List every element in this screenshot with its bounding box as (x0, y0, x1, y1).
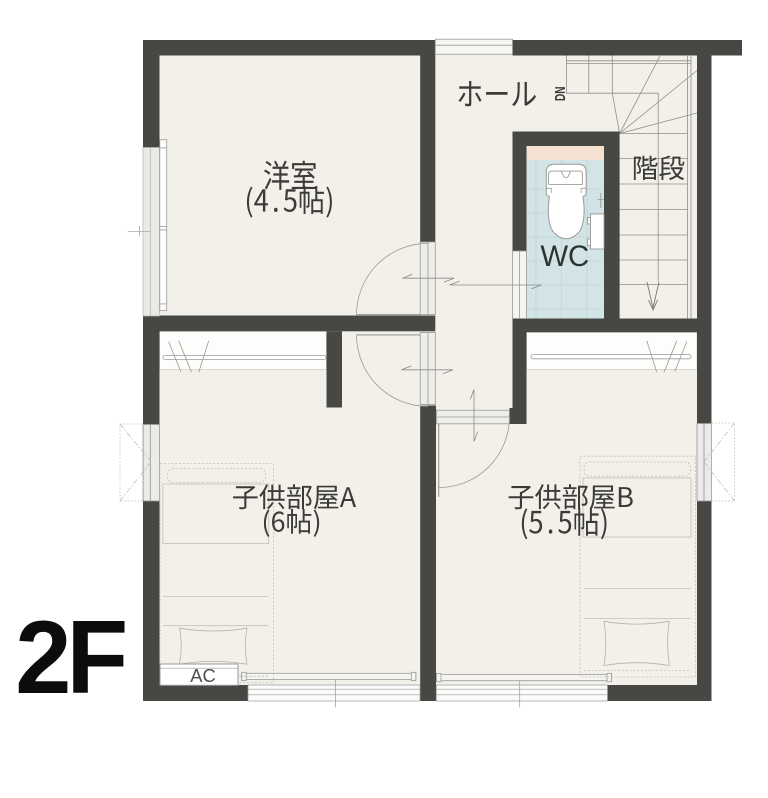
svg-text:WC: WC (540, 240, 589, 273)
svg-text:AC: AC (190, 665, 215, 686)
svg-text:2F: 2F (15, 599, 124, 716)
svg-text:DN: DN (552, 87, 569, 102)
